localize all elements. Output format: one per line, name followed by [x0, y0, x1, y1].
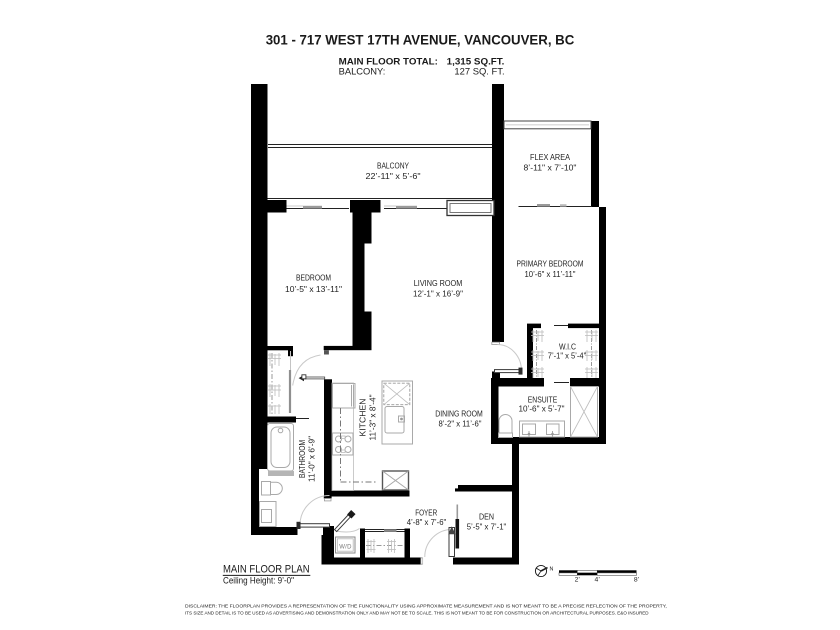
svg-text:Ceiling Height: 9’-0": Ceiling Height: 9’-0": [223, 575, 294, 585]
svg-text:10’-6" x 11’-11": 10’-6" x 11’-11": [525, 270, 576, 279]
svg-text:10’-6" x 5’-7": 10’-6" x 5’-7": [519, 404, 565, 413]
svg-text:8’-11" x 7’-10": 8’-11" x 7’-10": [524, 164, 577, 173]
svg-text:ENSUITE: ENSUITE: [528, 395, 558, 404]
svg-text:W/D: W/D: [339, 545, 352, 551]
svg-text:PRIMARY BEDROOM: PRIMARY BEDROOM: [517, 260, 584, 269]
svg-text:FOYER: FOYER: [415, 508, 437, 517]
svg-text:301 - 717 WEST 17TH AVENUE, VA: 301 - 717 WEST 17TH AVENUE, VANCOUVER, B…: [266, 32, 575, 47]
svg-text:MAIN FLOOR PLAN: MAIN FLOOR PLAN: [223, 563, 310, 575]
svg-text:BALCONY:: BALCONY:: [339, 66, 386, 77]
svg-text:DISCLAIMER: THE FLOORPLAN PROV: DISCLAIMER: THE FLOORPLAN PROVIDES A REP…: [185, 603, 667, 608]
svg-text:BEDROOM: BEDROOM: [296, 274, 331, 283]
svg-text:FLEX AREA: FLEX AREA: [530, 153, 570, 162]
svg-text:11’-3" x 8’-4": 11’-3" x 8’-4": [369, 394, 378, 440]
svg-text:2’: 2’: [575, 577, 581, 584]
svg-text:N: N: [550, 567, 554, 573]
svg-text:4’: 4’: [595, 577, 601, 584]
svg-text:7’-1" x 5’-4": 7’-1" x 5’-4": [548, 352, 587, 361]
svg-text:8’: 8’: [634, 577, 640, 584]
svg-text:ITS SIZE AND DETAIL IS TO BE U: ITS SIZE AND DETAIL IS TO BE USED AS ADV…: [185, 610, 649, 615]
svg-text:LIVING ROOM: LIVING ROOM: [414, 279, 463, 288]
svg-text:22’-11" x 5’-6": 22’-11" x 5’-6": [366, 172, 421, 181]
svg-text:DINING ROOM: DINING ROOM: [435, 409, 483, 418]
svg-text:12’-1" x 16’-9": 12’-1" x 16’-9": [413, 290, 463, 299]
svg-text:W.I.C: W.I.C: [559, 342, 576, 351]
svg-text:BATHROOM: BATHROOM: [298, 440, 307, 478]
svg-text:127 SQ. FT.: 127 SQ. FT.: [454, 66, 504, 77]
svg-text:DEN: DEN: [479, 513, 494, 522]
svg-text:4’-8" x 7’-6": 4’-8" x 7’-6": [407, 518, 447, 527]
svg-text:5’-5" x 7’-1": 5’-5" x 7’-1": [467, 523, 507, 532]
svg-text:8’-2" x 11’-6": 8’-2" x 11’-6": [439, 419, 482, 428]
svg-text:10’-5" x 13’-11": 10’-5" x 13’-11": [285, 285, 342, 294]
svg-text:BALCONY: BALCONY: [377, 161, 409, 170]
svg-text:KITCHEN: KITCHEN: [359, 398, 368, 436]
svg-text:11’-0" x 6’-9": 11’-0" x 6’-9": [308, 436, 317, 482]
